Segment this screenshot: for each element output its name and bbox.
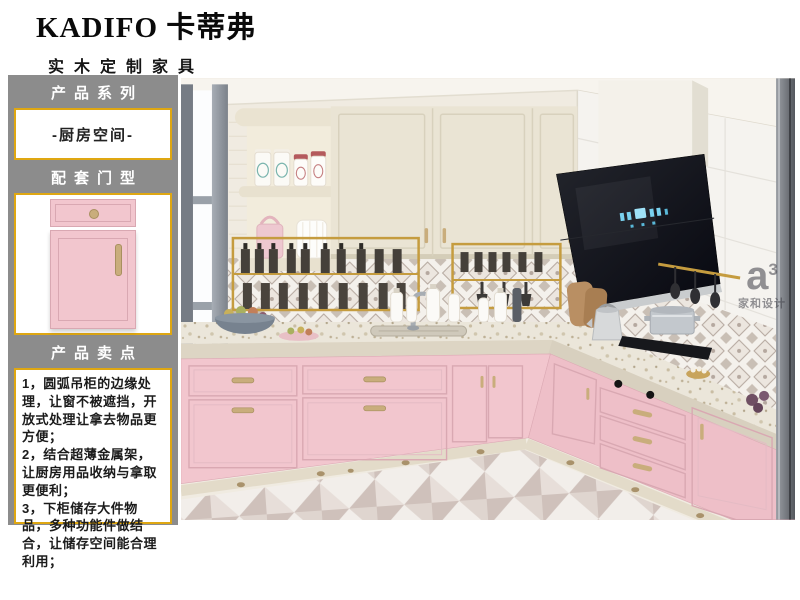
upper-cabinets — [331, 106, 578, 259]
watermark-a3-logo: a3 — [746, 254, 778, 298]
hood-duct — [598, 80, 708, 166]
drawer-knob — [89, 209, 99, 219]
thumbnail-drawer — [50, 199, 136, 227]
product-info-panel: 产品系列 -厨房空间- 配套门型 产品卖点 1，圆弧吊柜的边缘处理，让窗不被遮挡… — [8, 75, 178, 525]
section-title-series: 产品系列 — [8, 75, 178, 108]
selling-point: 2，结合超薄金属架，让厨房用品收纳与拿取更便利； — [22, 446, 164, 499]
brand-tagline: 实木定制家具 — [48, 53, 256, 77]
door-handle — [115, 244, 122, 276]
flyer-page: KADIFO 卡蒂弗 实木定制家具 产品系列 -厨房空间- 配套门型 产品卖点 … — [0, 0, 800, 600]
selling-point: 1，圆弧吊柜的边缘处理，让窗不被遮挡，开放式处理让拿去物品更方便； — [22, 375, 164, 446]
selling-point: 3，下柜储存大件物品，多种功能件做结合，让储存空间能合理利用； — [22, 500, 164, 571]
selling-points-box: 1，圆弧吊柜的边缘处理，让窗不被遮挡，开放式处理让拿去物品更方便； 2，结合超薄… — [14, 368, 172, 524]
section-title-selling: 产品卖点 — [8, 335, 178, 368]
designer-watermark: a3 家和设计 — [733, 256, 791, 310]
door-preview-box — [14, 193, 172, 335]
series-value: -厨房空间- — [52, 124, 134, 145]
brand-header: KADIFO 卡蒂弗 实木定制家具 — [36, 4, 256, 77]
series-value-box: -厨房空间- — [14, 108, 172, 160]
cabinet-door-thumbnail — [50, 199, 136, 329]
brand-logo: KADIFO 卡蒂弗 — [36, 4, 256, 46]
thumbnail-door-panel — [50, 230, 136, 329]
watermark-studio-name: 家和设计 — [733, 299, 791, 310]
section-title-door: 配套门型 — [8, 160, 178, 193]
kitchen-render-photo: a3 家和设计 — [181, 78, 795, 520]
